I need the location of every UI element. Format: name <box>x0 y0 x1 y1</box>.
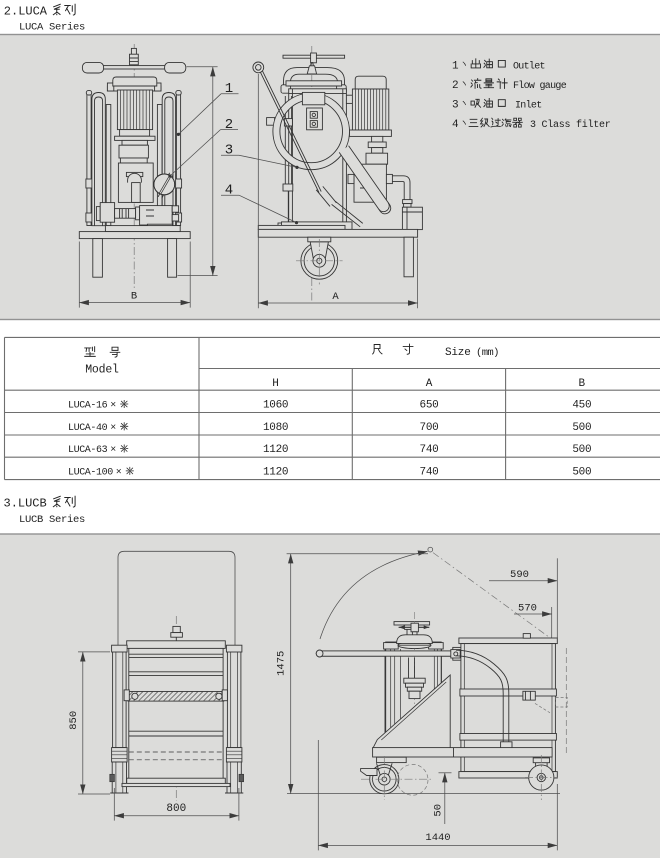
svg-text:1120: 1120 <box>263 444 288 456</box>
svg-text:1060: 1060 <box>263 400 288 412</box>
svg-text:1: 1 <box>225 81 233 97</box>
svg-text:Model: Model <box>85 364 119 377</box>
svg-text:1440: 1440 <box>425 832 450 844</box>
svg-text:50: 50 <box>432 804 444 817</box>
svg-text:LUCA-16: LUCA-16 <box>68 401 108 412</box>
svg-text:×: × <box>110 445 116 456</box>
svg-text:2: 2 <box>225 117 233 133</box>
svg-text:570: 570 <box>518 603 537 615</box>
svg-text:450: 450 <box>572 400 591 412</box>
svg-text:1080: 1080 <box>263 422 288 434</box>
svg-text:×: × <box>110 401 116 412</box>
svg-text:3 Class filter: 3 Class filter <box>530 119 611 131</box>
svg-text:LUCA Series: LUCA Series <box>19 21 85 33</box>
svg-text:Size: Size <box>445 347 471 359</box>
svg-text:H: H <box>272 378 279 390</box>
svg-text:740: 740 <box>420 467 439 479</box>
svg-text:×: × <box>116 468 122 479</box>
svg-text:A: A <box>426 378 433 390</box>
svg-text:LUCA-40: LUCA-40 <box>68 423 108 434</box>
svg-text:LUCB Series: LUCB Series <box>19 514 85 526</box>
svg-text:500: 500 <box>572 444 591 456</box>
svg-text:Inlet: Inlet <box>515 100 542 112</box>
svg-text:590: 590 <box>510 569 529 581</box>
svg-text:500: 500 <box>572 422 591 434</box>
svg-text:1120: 1120 <box>263 467 288 479</box>
svg-text:(mm): (mm) <box>476 347 499 359</box>
svg-text:LUCA-63: LUCA-63 <box>68 445 108 456</box>
svg-text:Outlet: Outlet <box>513 60 545 72</box>
svg-text:3: 3 <box>225 142 233 158</box>
svg-text:A: A <box>332 291 339 303</box>
svg-text:2: 2 <box>452 80 459 92</box>
svg-text:850: 850 <box>68 711 80 730</box>
svg-text:700: 700 <box>420 422 439 434</box>
svg-text:B: B <box>578 378 585 390</box>
svg-text:800: 800 <box>166 803 186 815</box>
svg-text:B: B <box>131 291 137 303</box>
svg-text:4: 4 <box>452 119 459 131</box>
svg-text:500: 500 <box>572 467 591 479</box>
svg-text:740: 740 <box>420 444 439 456</box>
svg-text:3.LUCB: 3.LUCB <box>4 496 47 510</box>
svg-text:1475: 1475 <box>275 651 287 676</box>
svg-text:2.LUCA: 2.LUCA <box>4 5 48 19</box>
svg-text:3: 3 <box>452 100 459 112</box>
svg-text:LUCA-100: LUCA-100 <box>68 468 113 479</box>
svg-text:×: × <box>110 423 116 434</box>
svg-text:4: 4 <box>225 182 233 198</box>
svg-text:650: 650 <box>420 400 439 412</box>
svg-text:1: 1 <box>452 60 459 72</box>
svg-text:Flow gauge: Flow gauge <box>513 80 567 92</box>
